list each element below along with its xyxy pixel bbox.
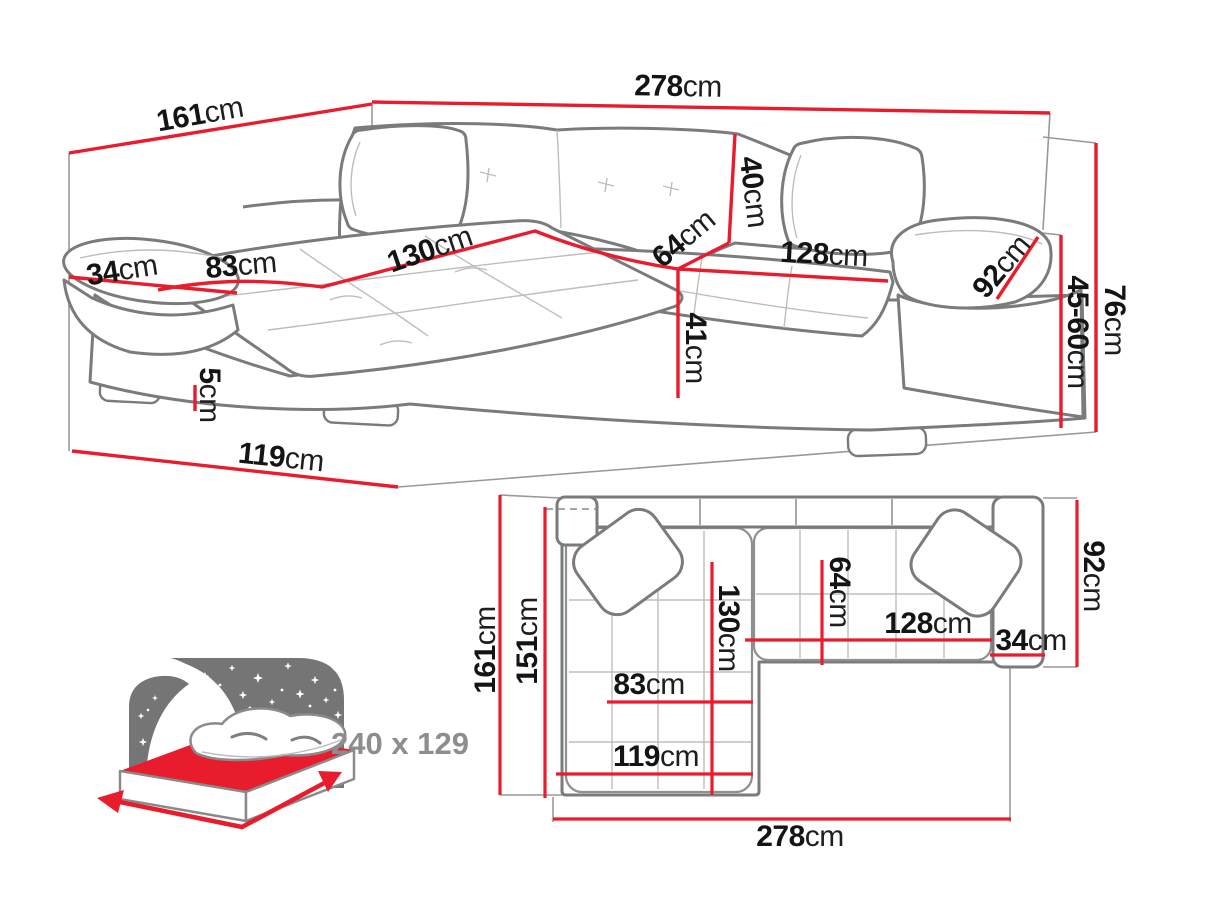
dim-line-119: [72, 451, 398, 487]
perspective-view: [60, 102, 1096, 487]
sleeping-area-size-label: 240 x 129: [331, 726, 469, 762]
dim-line-278: [372, 102, 1050, 113]
chaise-back-rail: [243, 200, 353, 207]
sofa-bed-function-icon: [97, 658, 354, 827]
plan-view: [500, 495, 1077, 822]
dim-line-161: [69, 104, 372, 153]
sofa-dimensions-drawing: [0, 0, 1214, 911]
duvet: [190, 708, 345, 760]
armrest-right: [892, 218, 1083, 417]
dimension-diagram-page: 161cm278cm34cm83cm130cm64cm40cm128cm92cm…: [0, 0, 1214, 911]
